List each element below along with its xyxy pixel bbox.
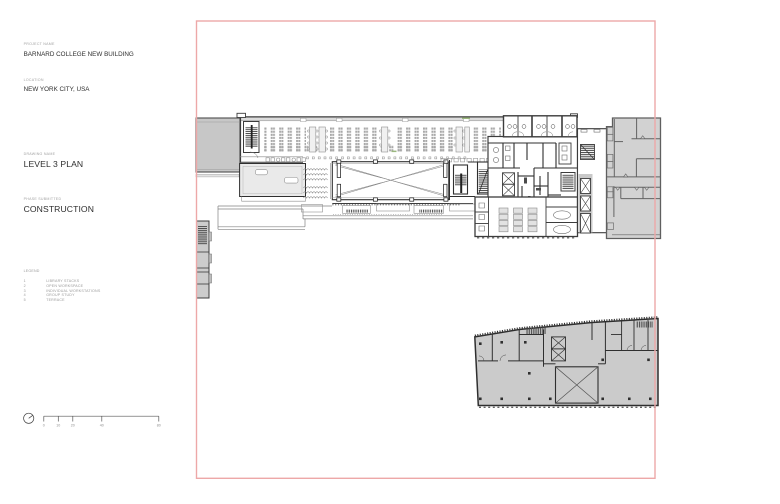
- svg-text:10: 10: [56, 424, 60, 428]
- svg-text:20: 20: [71, 424, 75, 428]
- svg-text:40: 40: [100, 424, 104, 428]
- svg-text:0: 0: [43, 424, 45, 428]
- svg-text:80: 80: [157, 424, 161, 428]
